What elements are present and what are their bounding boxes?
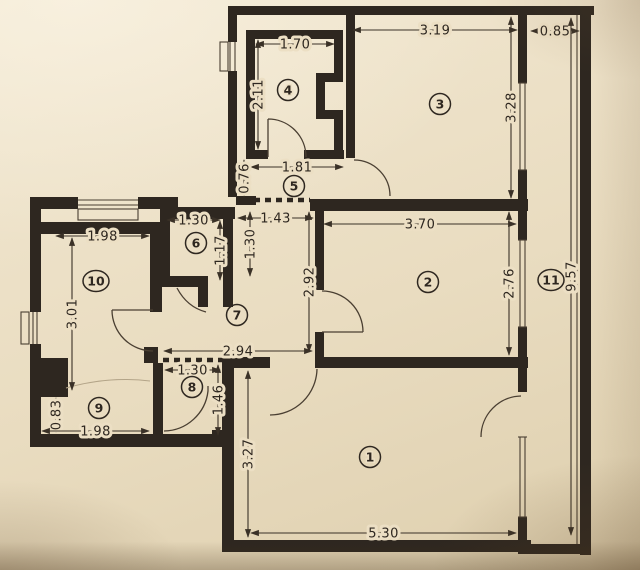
room-number: 6 bbox=[192, 236, 201, 251]
dimension-label: 1.30 bbox=[244, 229, 259, 260]
window bbox=[220, 42, 235, 71]
wall bbox=[144, 347, 158, 363]
window bbox=[21, 312, 37, 344]
wall bbox=[580, 6, 591, 555]
wall bbox=[222, 540, 531, 552]
door-arc bbox=[481, 396, 521, 437]
dimension-label: 5.30 bbox=[368, 527, 399, 542]
dimension-label: 0.85 bbox=[540, 25, 571, 40]
dimension-label: 1.43 bbox=[260, 212, 291, 227]
dimension-label: 1.17 bbox=[214, 235, 229, 266]
room-number: 7 bbox=[233, 308, 242, 323]
dimension-label: 3.70 bbox=[405, 218, 436, 233]
room-number: 1 bbox=[366, 450, 375, 465]
wall bbox=[198, 276, 208, 307]
window bbox=[78, 200, 138, 220]
room-number: 3 bbox=[436, 97, 445, 112]
dimension-label: 2.76 bbox=[503, 268, 518, 299]
wall bbox=[246, 150, 268, 159]
wall bbox=[518, 170, 527, 240]
door-arc bbox=[112, 310, 153, 351]
dimension-label: 1.81 bbox=[282, 161, 313, 176]
wall bbox=[334, 110, 343, 159]
room-number: 11 bbox=[542, 273, 559, 288]
dimension-label: 1.98 bbox=[87, 230, 118, 245]
door-arc bbox=[270, 369, 317, 415]
door-arc bbox=[354, 160, 390, 196]
wall bbox=[30, 197, 41, 312]
dimension-label: 3.01 bbox=[66, 299, 81, 330]
wall bbox=[518, 327, 527, 392]
room-number: 9 bbox=[95, 401, 104, 416]
window bbox=[518, 240, 527, 327]
room-number: 5 bbox=[290, 179, 299, 194]
dimension-label: 2.94 bbox=[223, 345, 254, 360]
wall bbox=[346, 15, 355, 158]
dimensions-layer: 1.702.113.190.853.281.810.761.431.302.92… bbox=[42, 17, 580, 542]
door-arc bbox=[268, 119, 306, 157]
dimension-label: 1.46 bbox=[212, 385, 227, 416]
dimension-label: 3.27 bbox=[242, 439, 257, 470]
wall bbox=[228, 6, 594, 15]
window bbox=[518, 437, 527, 517]
dimension-label: 1.70 bbox=[280, 38, 311, 53]
room-number: 2 bbox=[424, 275, 433, 290]
dimension-label: 0.76 bbox=[238, 163, 253, 194]
wall bbox=[150, 222, 162, 312]
room-number: 8 bbox=[188, 380, 197, 395]
wall bbox=[228, 71, 237, 197]
room-number: 10 bbox=[87, 274, 105, 289]
wall bbox=[236, 196, 256, 205]
wall bbox=[30, 434, 234, 447]
wall bbox=[518, 15, 527, 83]
wall bbox=[160, 276, 198, 287]
dimension-label: 0.83 bbox=[50, 400, 65, 431]
door-arc bbox=[322, 291, 363, 332]
floor-plan-svg: 1.702.113.190.853.281.810.761.431.302.92… bbox=[0, 0, 640, 570]
dimension-label: 1.30 bbox=[178, 214, 209, 229]
paper-crease bbox=[66, 380, 150, 388]
room-number: 4 bbox=[284, 83, 293, 98]
wall bbox=[310, 199, 528, 211]
dimension-label: 3.28 bbox=[505, 92, 520, 123]
wall bbox=[41, 358, 68, 397]
floor-plan-photo: 1.702.113.190.853.281.810.761.431.302.92… bbox=[0, 0, 640, 570]
dimension-label: 9.57 bbox=[565, 261, 580, 292]
wall bbox=[518, 517, 527, 544]
dimension-label: 2.92 bbox=[303, 267, 318, 298]
wall bbox=[228, 6, 237, 42]
wall bbox=[518, 544, 591, 554]
dimension-label: 3.19 bbox=[420, 24, 451, 39]
dimension-label: 2.11 bbox=[252, 79, 267, 110]
wall bbox=[30, 344, 41, 447]
dimension-label: 1.98 bbox=[80, 425, 111, 440]
wall bbox=[322, 357, 528, 368]
